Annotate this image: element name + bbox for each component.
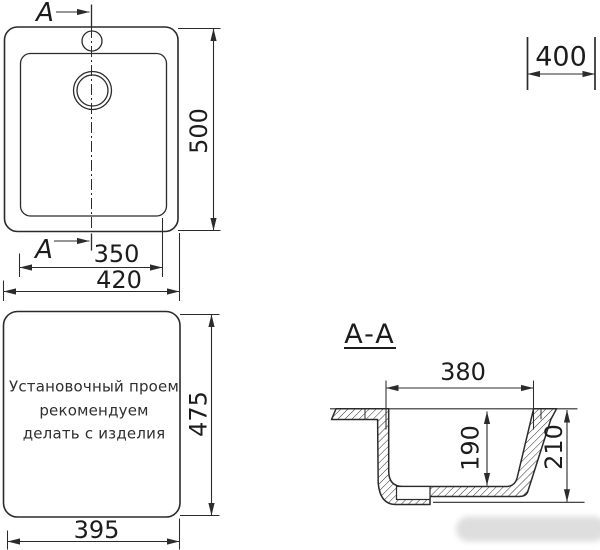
drain-hole-inner — [77, 75, 108, 106]
dim-opening-width-label: 395 — [74, 516, 120, 544]
dim-plan-height: 500 — [178, 29, 221, 231]
sink-technical-drawing: A A 500 350 420 — [0, 0, 600, 550]
drawing-canvas: A A 500 350 420 — [0, 0, 600, 550]
dim-section-depth-label: 190 — [457, 425, 485, 471]
opening-note-line1: Установочный проем — [9, 378, 179, 396]
dim-plan-outer-width-label: 420 — [96, 266, 142, 294]
dim-plan-inner-width-label: 350 — [94, 240, 140, 268]
section-body — [332, 409, 557, 505]
dim-plan-height-label: 500 — [185, 108, 213, 154]
cut-mark-bottom: A — [33, 234, 91, 266]
dim-opening-height: 475 — [180, 315, 220, 516]
cut-label-bottom: A — [33, 235, 53, 265]
drain-hole-outer — [74, 72, 112, 110]
dim-section-width-label: 380 — [440, 358, 486, 386]
plan-view: A A 500 350 420 — [4, 0, 221, 301]
dim-section-width: 380 — [386, 358, 534, 430]
opening-note-line2: рекомендуем — [39, 402, 148, 420]
dim-cabinet-width-label: 400 — [535, 42, 587, 73]
watermark — [456, 517, 600, 542]
cut-mark-top: A — [34, 0, 91, 28]
dim-section-height-label: 210 — [540, 424, 568, 470]
section-title: A-A — [344, 319, 396, 350]
install-opening-view: Установочный проем рекомендуем делать с … — [4, 312, 220, 550]
plan-bowl-contour — [21, 54, 167, 217]
drain-pocket — [397, 487, 431, 500]
section-view: A-A 380 190 210 — [330, 319, 600, 542]
cut-label-top: A — [34, 0, 54, 28]
dim-opening-width: 395 — [8, 516, 180, 550]
dim-opening-height-label: 475 — [185, 391, 213, 437]
dim-section-depth: 190 — [457, 412, 488, 486]
cabinet-width-dim: 400 — [528, 37, 596, 90]
opening-note-line3: делать с изделия — [23, 425, 166, 443]
